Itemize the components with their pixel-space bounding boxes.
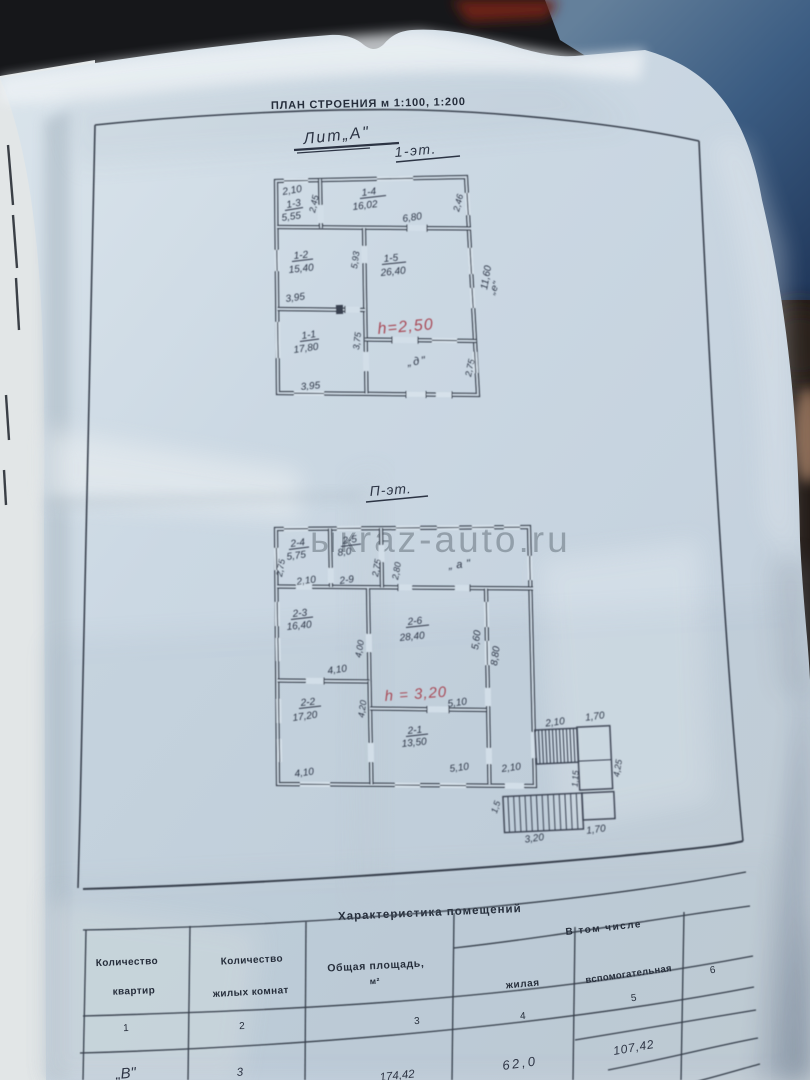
svg-text:2: 2 xyxy=(239,1021,245,1032)
svg-text:3: 3 xyxy=(414,1016,421,1027)
svg-text:Количество: Количество xyxy=(96,956,159,969)
svg-text:м²: м² xyxy=(369,976,380,987)
svg-text:1,15: 1,15 xyxy=(570,770,581,787)
svg-text:3,95: 3,95 xyxy=(300,380,321,393)
svg-text:1: 1 xyxy=(123,1023,129,1034)
svg-text:квартир: квартир xyxy=(112,985,155,997)
svg-text:2-9: 2-9 xyxy=(338,574,355,587)
svg-text:8,0: 8,0 xyxy=(337,546,353,559)
svg-text:„В": „В" xyxy=(114,1064,137,1080)
svg-text:П-эт.: П-эт. xyxy=(369,480,412,499)
